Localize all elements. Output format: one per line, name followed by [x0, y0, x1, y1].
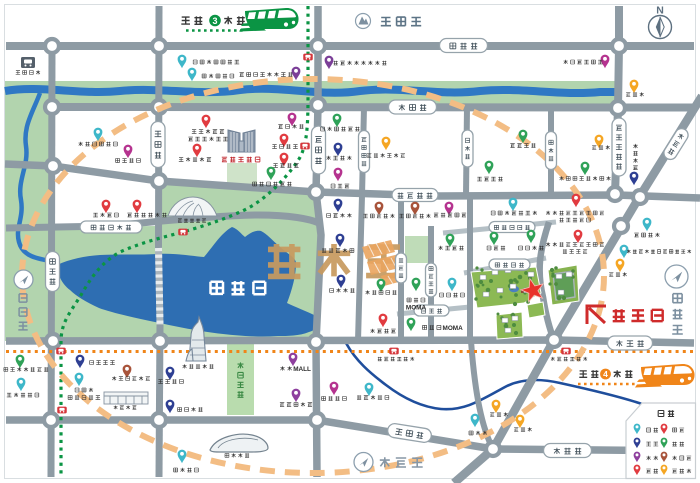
svg-text:3: 3	[212, 16, 217, 26]
svg-text:MOMA: MOMA	[443, 325, 464, 332]
svg-text:4: 4	[603, 369, 608, 379]
svg-text:N: N	[656, 5, 664, 17]
svg-text:MOMA: MOMA	[406, 305, 427, 312]
svg-text:MALL: MALL	[293, 366, 311, 373]
